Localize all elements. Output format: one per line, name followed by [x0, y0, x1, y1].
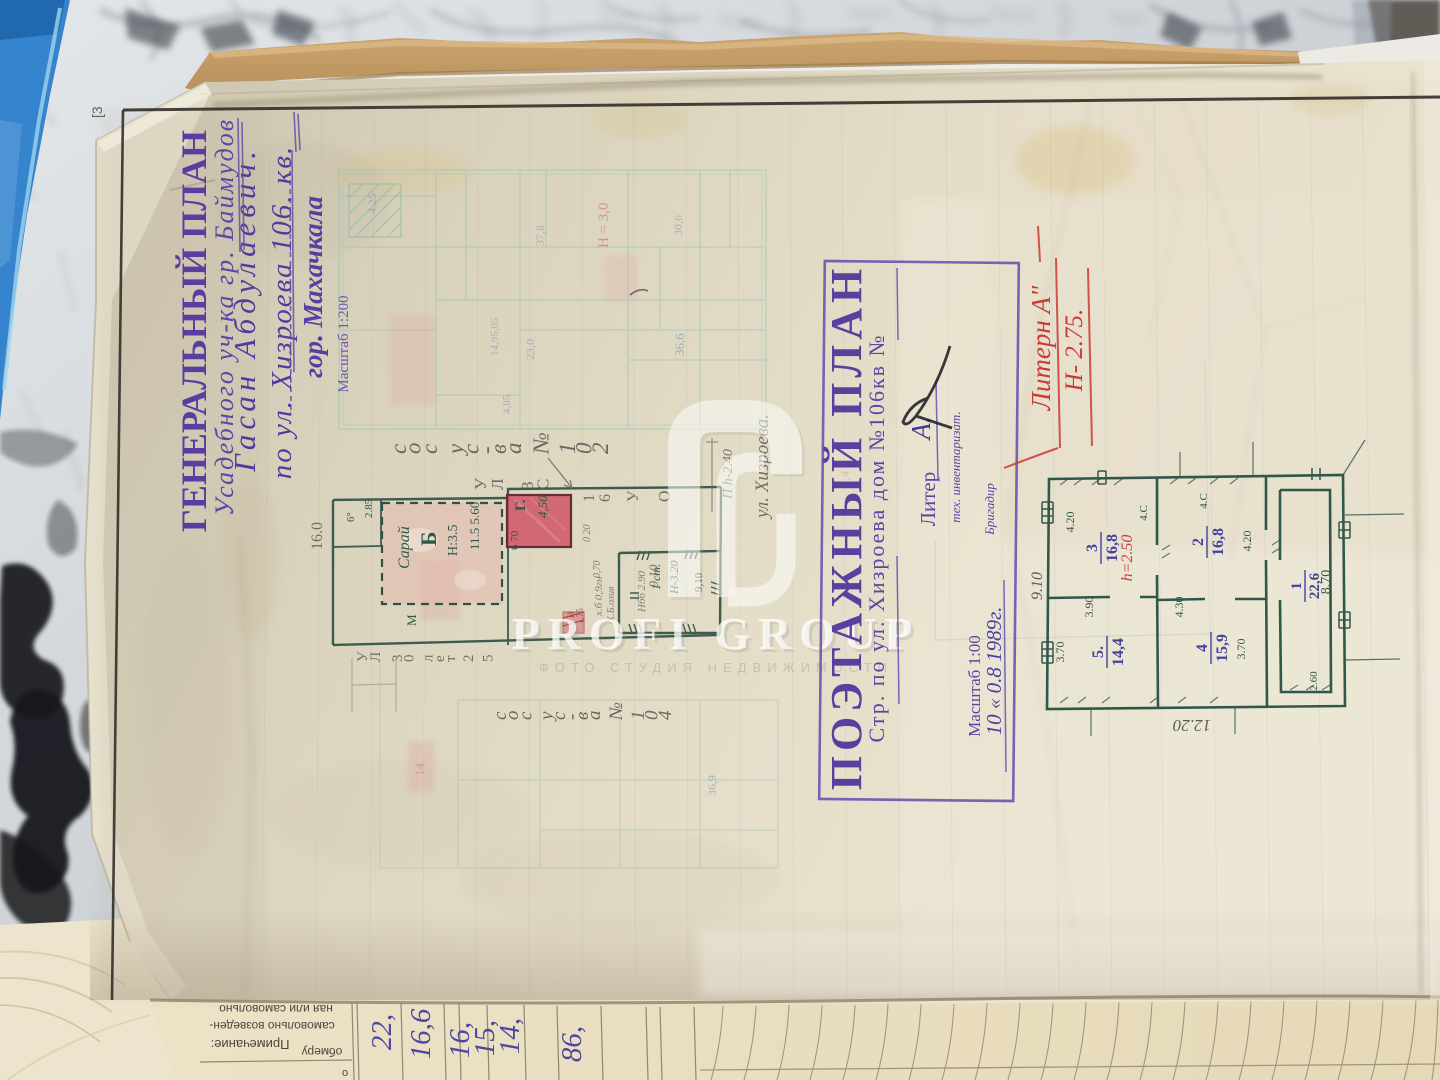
svg-text:14,95,05: 14,95,05: [489, 317, 501, 356]
svg-text:37,8: 37,8: [533, 225, 547, 246]
svg-text:Гасан Абдулаевич.: Гасан Абдулаевич.: [227, 146, 262, 473]
svg-text:9 10: 9 10: [646, 564, 661, 587]
svg-text:8.70: 8.70: [1319, 570, 1334, 595]
svg-text:самовольно возведен-: самовольно возведен-: [209, 1019, 334, 1033]
svg-text:36,6: 36,6: [672, 333, 687, 356]
svg-text:ная или самовольно: ная или самовольно: [219, 1002, 333, 1016]
svg-text:ГЕНЕРАЛЬНЫЙ ПЛАН: ГЕНЕРАЛЬНЫЙ ПЛАН: [174, 130, 214, 532]
svg-text:4,85: 4,85: [501, 394, 513, 414]
svg-text:Литер: Литер: [916, 472, 940, 526]
svg-text:14,: 14,: [494, 1018, 526, 1054]
svg-text:23,0: 23,0: [523, 339, 537, 360]
svg-text:14,4: 14,4: [1110, 638, 1127, 666]
svg-text:4.30: 4.30: [1172, 597, 1186, 618]
svg-text:4,25: 4,25: [365, 193, 379, 214]
svg-text:3.70: 3.70: [1053, 642, 1067, 663]
svg-text:22,: 22,: [366, 1014, 398, 1050]
svg-text:11.5 5.60: 11.5 5.60: [467, 502, 482, 550]
svg-text:9.10: 9.10: [1029, 572, 1046, 600]
svg-text:Масштаб 1:200: Масштаб 1:200: [336, 295, 352, 392]
svg-text:0,70: 0,70: [592, 561, 603, 579]
svg-text:Бригадир: Бригадир: [982, 483, 997, 536]
svg-text:5.: 5.: [1090, 646, 1107, 658]
svg-text:[3: [3: [89, 106, 105, 118]
svg-text:Литерн А": Литерн А": [1026, 285, 1056, 411]
svg-text:30,6: 30,6: [671, 215, 685, 236]
svg-text:Сарай: Сарай: [396, 526, 413, 569]
svg-text:Стр. по ул. Хизроева дом №1: Стр. по ул. Хизроева дом №106кв №: [864, 333, 889, 742]
svg-text:6 70: 6 70: [509, 530, 521, 550]
svg-text:16.0: 16.0: [309, 522, 326, 550]
svg-text:обмеру: обмеру: [302, 1045, 343, 1059]
svg-text:4.20: 4.20: [1063, 512, 1077, 533]
svg-text:Б: Б: [416, 531, 441, 546]
svg-text:2.60: 2.60: [1308, 671, 1320, 691]
svg-text:3: 3: [1084, 544, 1101, 552]
svg-text:4,50: 4,50: [535, 495, 550, 518]
svg-text:2: 2: [1190, 538, 1207, 546]
svg-text:Н- 2.75.: Н- 2.75.: [1061, 309, 1088, 393]
svg-text:гор. Махачкала: гор. Махачкала: [298, 196, 328, 378]
svg-text:о: о: [342, 1067, 348, 1079]
svg-text:6°: 6°: [345, 512, 357, 522]
svg-text:16,6: 16,6: [405, 1008, 437, 1059]
svg-text:4: 4: [1194, 644, 1211, 652]
svg-text:4.С: 4.С: [1138, 505, 1150, 521]
svg-text:4.С: 4.С: [1198, 493, 1210, 509]
svg-text:86,: 86,: [556, 1026, 588, 1062]
svg-text:16,8: 16,8: [1210, 528, 1227, 556]
svg-text:3.90: 3.90: [1082, 597, 1096, 618]
svg-text:М: М: [404, 614, 419, 626]
svg-text:4.20: 4.20: [1240, 531, 1254, 552]
svg-text:h=2.50: h=2.50: [1119, 535, 1136, 582]
svg-text:12.20: 12.20: [1172, 716, 1211, 735]
svg-text:10 « 0.8 1989г.: 10 « 0.8 1989г.: [982, 607, 1006, 736]
svg-text:1: 1: [1289, 582, 1305, 590]
svg-text:0 20: 0 20: [582, 525, 593, 543]
svg-text:36,9: 36,9: [705, 775, 719, 796]
svg-text:15,9: 15,9: [1214, 634, 1231, 662]
svg-text:Примечание:: Примечание:: [211, 1037, 290, 1052]
svg-text:Н:3.5: Н:3.5: [446, 525, 461, 557]
svg-text:Г.: Г.: [513, 499, 529, 511]
svg-text:Н = 3,0: Н = 3,0: [596, 202, 612, 248]
svg-text:3.70: 3.70: [1234, 639, 1248, 660]
svg-text:2.85: 2.85: [363, 498, 375, 518]
